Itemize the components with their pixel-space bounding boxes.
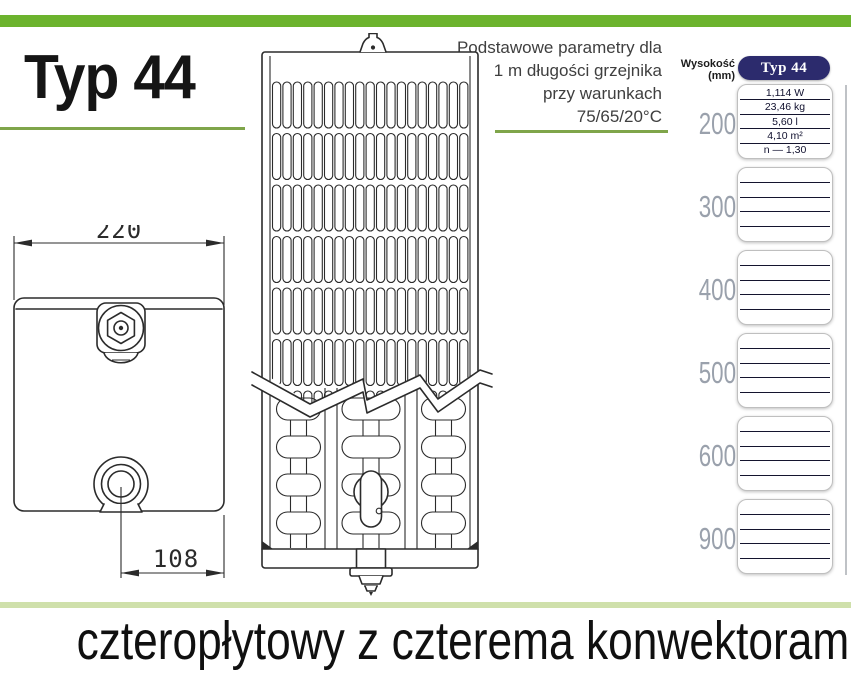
- title-underline: [0, 127, 245, 130]
- height-label-900: 900: [693, 521, 736, 557]
- radiator-front-view-drawing: [250, 33, 500, 598]
- type-column-header: Typ 44: [738, 56, 830, 80]
- height-label-600: 600: [693, 438, 736, 474]
- width-dimension-label: 220: [96, 225, 142, 244]
- spec-value-area: 4,10 m²: [740, 129, 830, 143]
- spec-value-volume: 5,60 l: [740, 115, 830, 129]
- spec-box-500: [737, 333, 833, 408]
- spec-value-weight: 23,46 kg: [740, 100, 830, 114]
- offset-dimension-label: 108: [153, 545, 199, 573]
- type-column-header-text: Typ 44: [761, 60, 807, 77]
- spec-value-exponent: n — 1,30: [740, 144, 830, 157]
- spec-box-200: 1,114 W 23,46 kg 5,60 l 4,10 m² n — 1,30: [737, 84, 833, 159]
- height-label-200: 200: [693, 106, 736, 142]
- height-label-400: 400: [693, 272, 736, 308]
- footer-caption: czteropłytowy z czterema konwektorami: [77, 610, 775, 672]
- page-title: Typ 44: [24, 42, 195, 113]
- height-label-300: 300: [693, 189, 736, 225]
- spec-sheet-page: Typ 44 Podstawowe parametry dla 1 m dług…: [0, 0, 851, 699]
- height-axis-label: Wysokość (mm): [660, 58, 735, 82]
- height-label-500: 500: [693, 355, 736, 391]
- bottom-accent-bar: [0, 602, 851, 608]
- spec-value-power: 1,114 W: [740, 86, 830, 100]
- note-underline: [495, 130, 668, 133]
- spec-box-300: [737, 167, 833, 242]
- spec-box-600: [737, 416, 833, 491]
- spec-box-400: [737, 250, 833, 325]
- page-edge-line: [845, 85, 847, 575]
- spec-box-900: [737, 499, 833, 574]
- top-accent-bar: [0, 15, 851, 27]
- radiator-side-view-drawing: 220 108: [0, 225, 245, 600]
